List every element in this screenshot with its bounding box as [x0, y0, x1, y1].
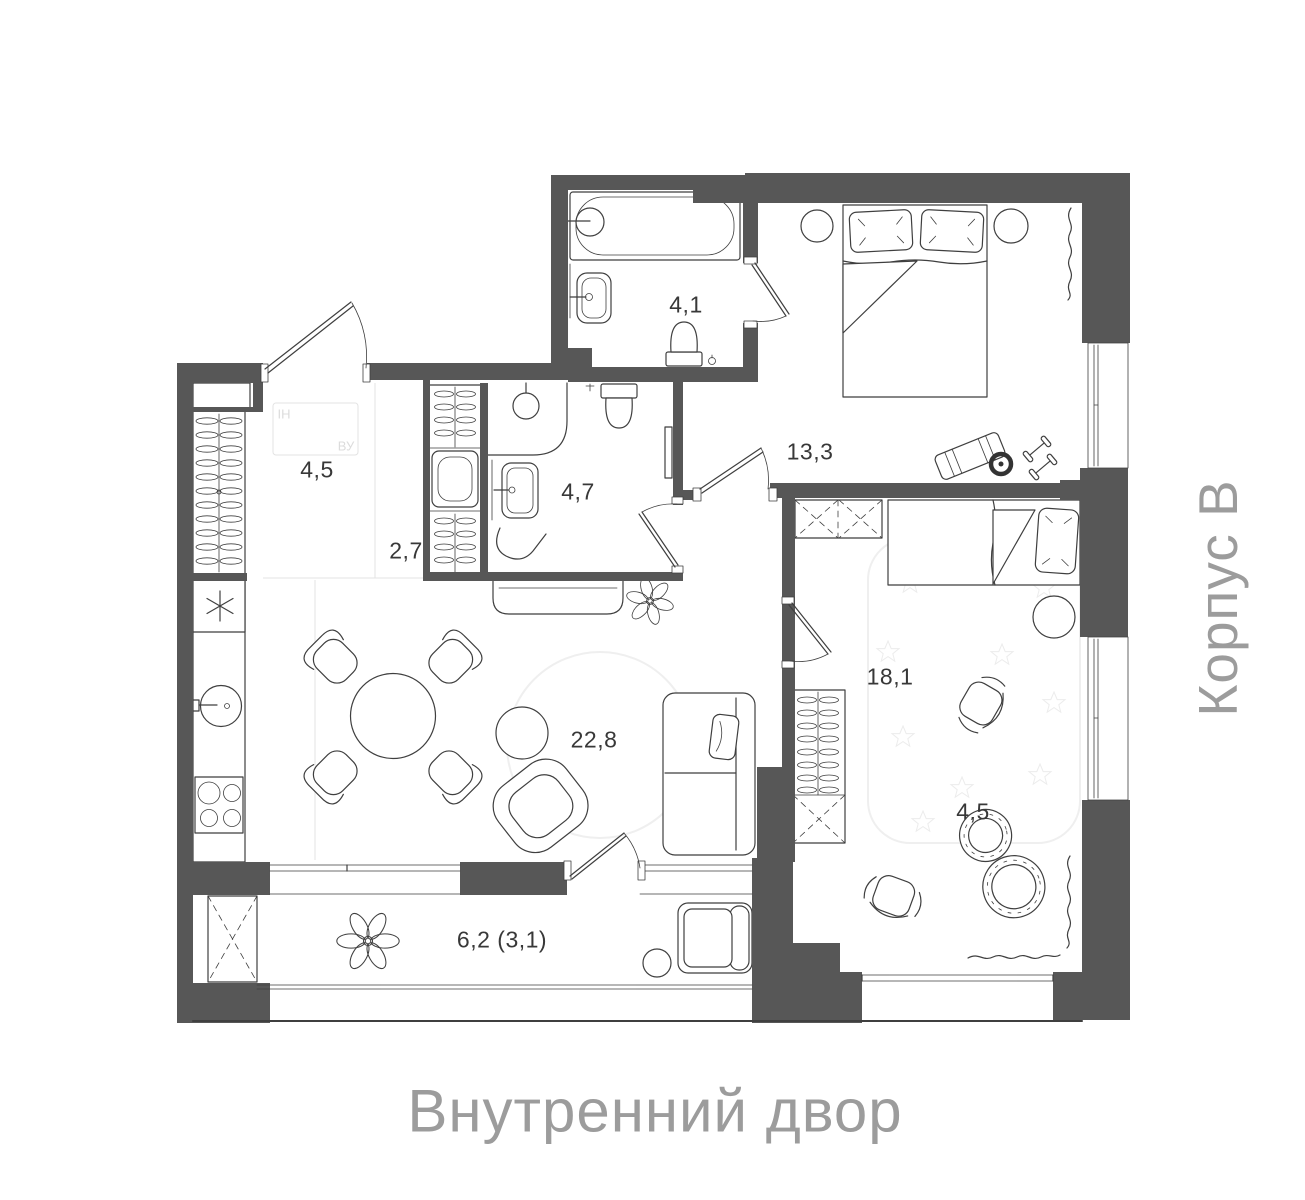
sofa: [663, 693, 755, 855]
toilet: [601, 384, 637, 428]
bedroom-door: [693, 448, 777, 501]
entrance-door: [261, 302, 370, 382]
dining-set: [300, 626, 486, 808]
utility-mark-vu: ВУ: [338, 439, 355, 454]
hallway-wardrobe: [193, 411, 245, 574]
towel-radiator: [665, 427, 672, 478]
shoe-cabinet: [193, 383, 250, 409]
pouf: [496, 707, 548, 759]
bathroom-sink: [492, 460, 538, 520]
bathroom-door: [639, 497, 683, 573]
bedside-stool: [801, 210, 833, 242]
ensuite-sink: [570, 264, 611, 323]
building-label: Корпус В: [1186, 479, 1250, 716]
valve-icon: [586, 384, 594, 391]
dumbbell: [1028, 453, 1057, 480]
window: [640, 865, 752, 894]
kitchen-counter: [193, 580, 245, 862]
ensuite-toilet: [666, 322, 702, 366]
curtain: [1067, 856, 1070, 948]
toilet-brush-icon: [709, 355, 716, 365]
room-area-label-hallway: 4,5: [300, 457, 333, 484]
room-area-label-balcony: 6,2 (3,1): [457, 927, 547, 954]
storage-box: [208, 896, 257, 982]
shower: [488, 383, 567, 455]
console-table: [493, 580, 623, 614]
side-table: [643, 949, 671, 977]
room-area-label-play: 4,5: [956, 799, 989, 826]
pillow: [920, 209, 984, 252]
room-area-label-closet: 2,7: [389, 538, 422, 565]
utility-mark-in: ІН: [278, 407, 291, 422]
bedside-stool: [994, 209, 1028, 243]
pillow: [849, 209, 913, 252]
balcony-glazing: [193, 985, 1082, 1021]
floorplan-drawing: [0, 0, 1305, 1200]
dumbbell: [1022, 435, 1051, 462]
room-area-label-ensuite: 4,1: [669, 292, 702, 319]
floor-drain-hook: [497, 528, 546, 559]
window: [1088, 637, 1128, 800]
room-area-label-living: 22,8: [571, 727, 618, 754]
curtain: [1068, 208, 1071, 300]
window: [1088, 343, 1128, 468]
washing-machine: [432, 451, 478, 507]
ensuite-door: [744, 257, 789, 328]
room-area-label-bedroom: 13,3: [787, 439, 834, 466]
desk-chair: [859, 869, 926, 925]
floorplan-canvas: 4,5 2,7 4,7 4,1 13,3 22,8 18,1 4,5 6,2 (…: [0, 0, 1305, 1200]
plant: [337, 910, 399, 971]
single-bed: [888, 500, 1080, 585]
room-area-label-bathroom: 4,7: [561, 479, 594, 506]
armchair: [483, 749, 599, 863]
curtain: [968, 955, 1060, 958]
desk-chair: [951, 670, 1014, 739]
courtyard-label: Внутренний двор: [407, 1077, 902, 1146]
window: [270, 865, 460, 894]
double-bed: [843, 205, 987, 397]
closet-unit: [428, 385, 482, 575]
stove: [195, 777, 243, 833]
pillow: [1035, 508, 1079, 575]
wardrobe-x: [795, 500, 882, 538]
balcony-armchair: [678, 903, 752, 973]
sofa-pillow: [708, 714, 739, 761]
balcony-door: [564, 833, 645, 880]
room-area-label-kids: 18,1: [867, 664, 914, 691]
stool: [1033, 596, 1075, 638]
window: [862, 975, 1053, 981]
kids-wardrobe: [793, 690, 845, 843]
dining-table: [351, 674, 436, 759]
